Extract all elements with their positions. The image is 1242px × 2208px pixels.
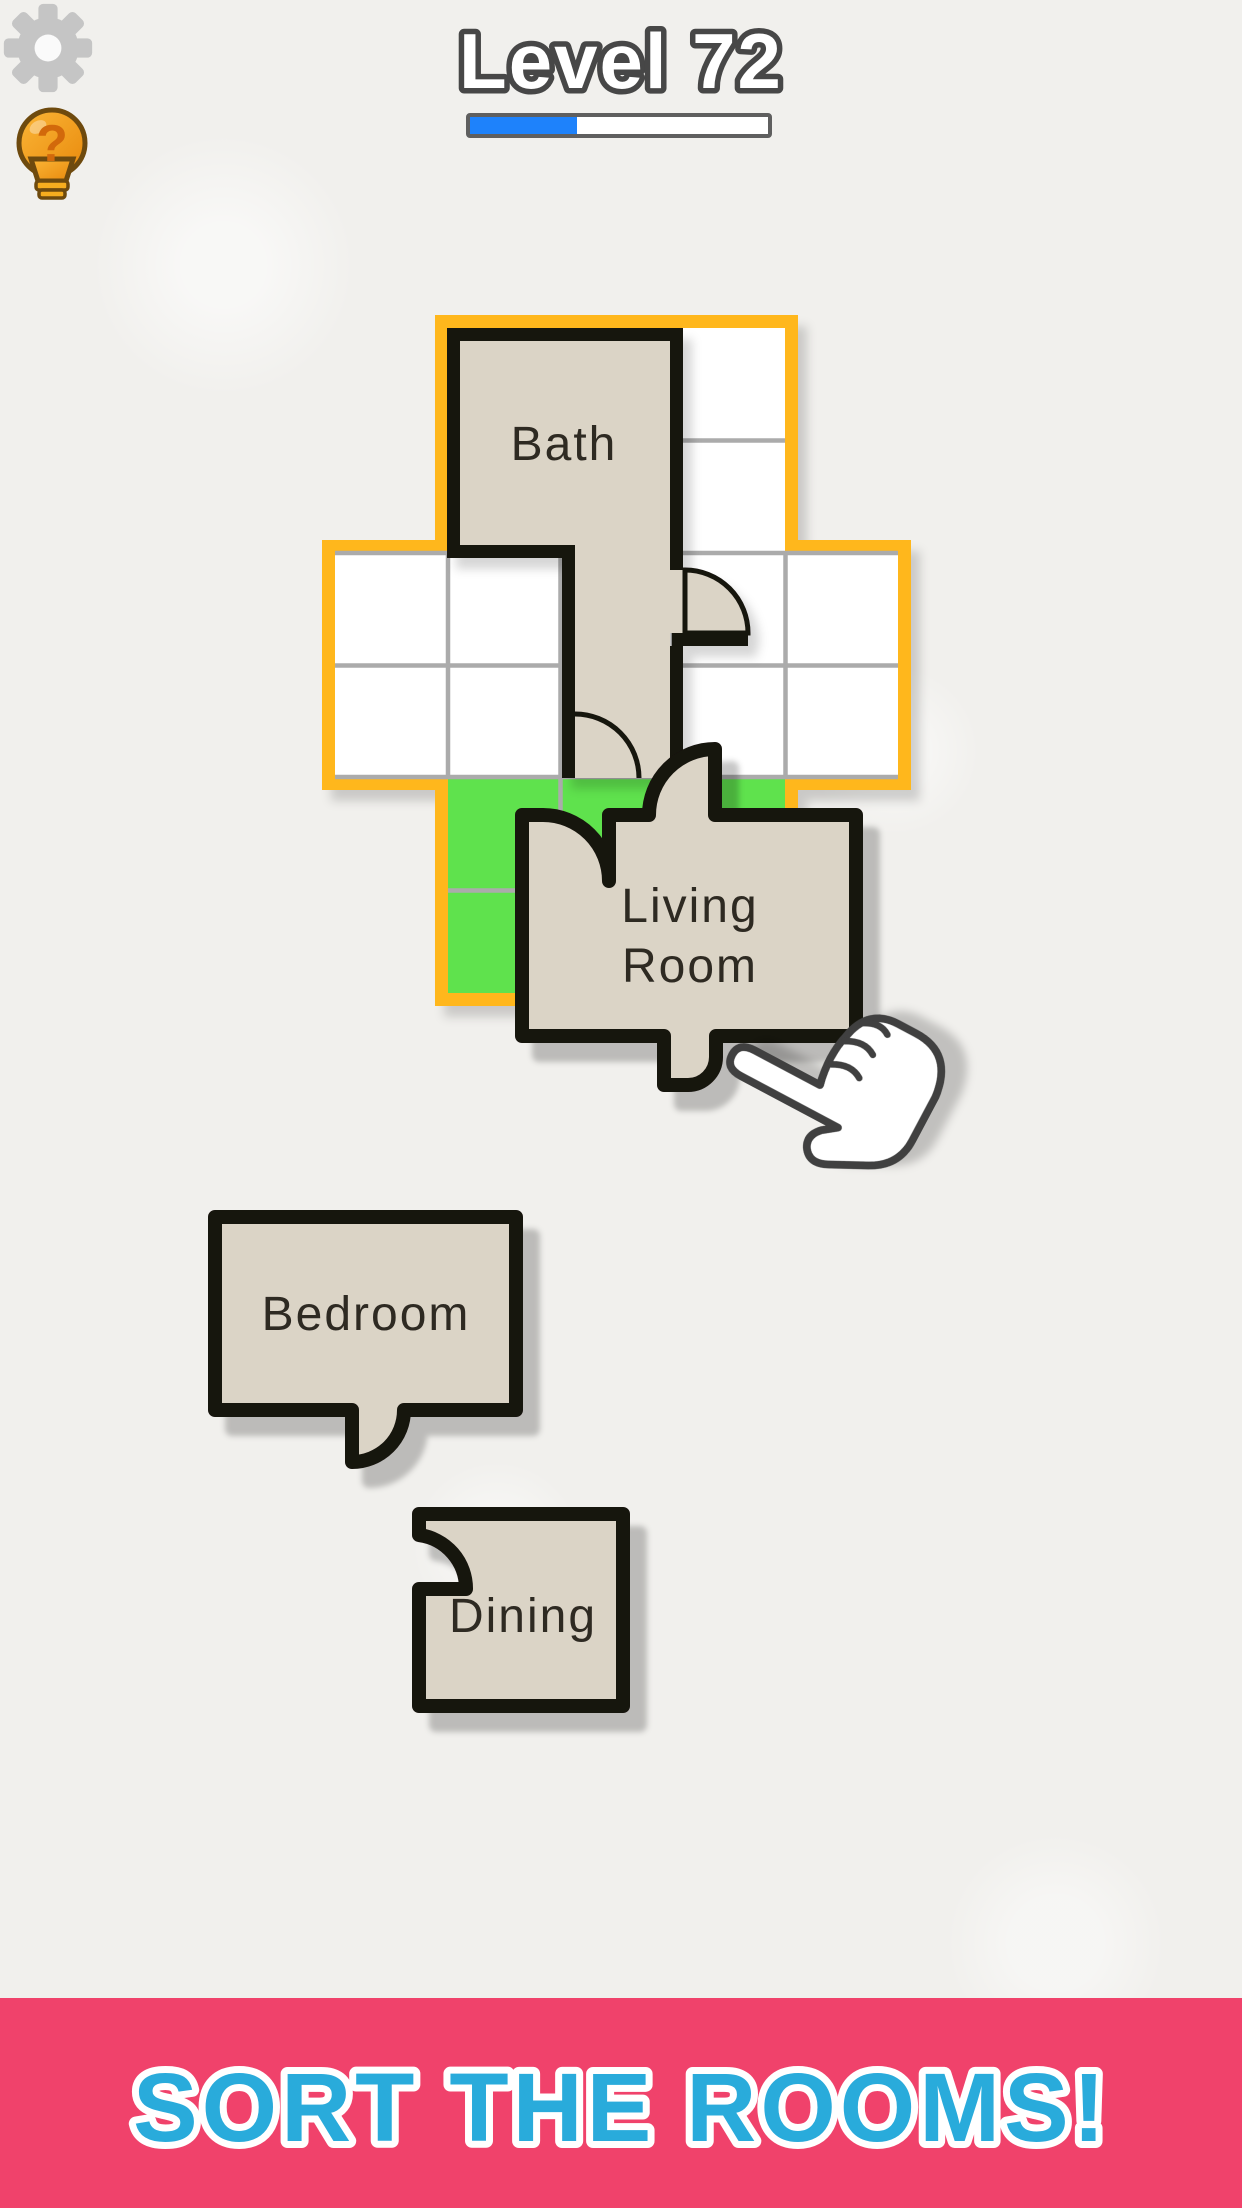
room-label-living-line2: Room <box>622 940 758 993</box>
piece-bedroom[interactable]: Bedroom <box>215 1217 516 1462</box>
svg-text:Room: Room <box>622 940 758 993</box>
piece-dining[interactable]: Dining <box>419 1514 623 1706</box>
game-area: Bath Living Room Bedroom Dining <box>0 0 1242 2208</box>
instruction-banner: SORT THE ROOMS! <box>0 1998 1242 2208</box>
room-label-bath: Bath <box>511 418 618 471</box>
room-label-dining: Dining <box>449 1590 597 1643</box>
room-label-bedroom: Bedroom <box>262 1288 471 1341</box>
svg-text:Living: Living <box>621 880 758 933</box>
room-label-living-line1: Living <box>621 880 758 933</box>
banner-text: SORT THE ROOMS! <box>133 2053 1109 2162</box>
